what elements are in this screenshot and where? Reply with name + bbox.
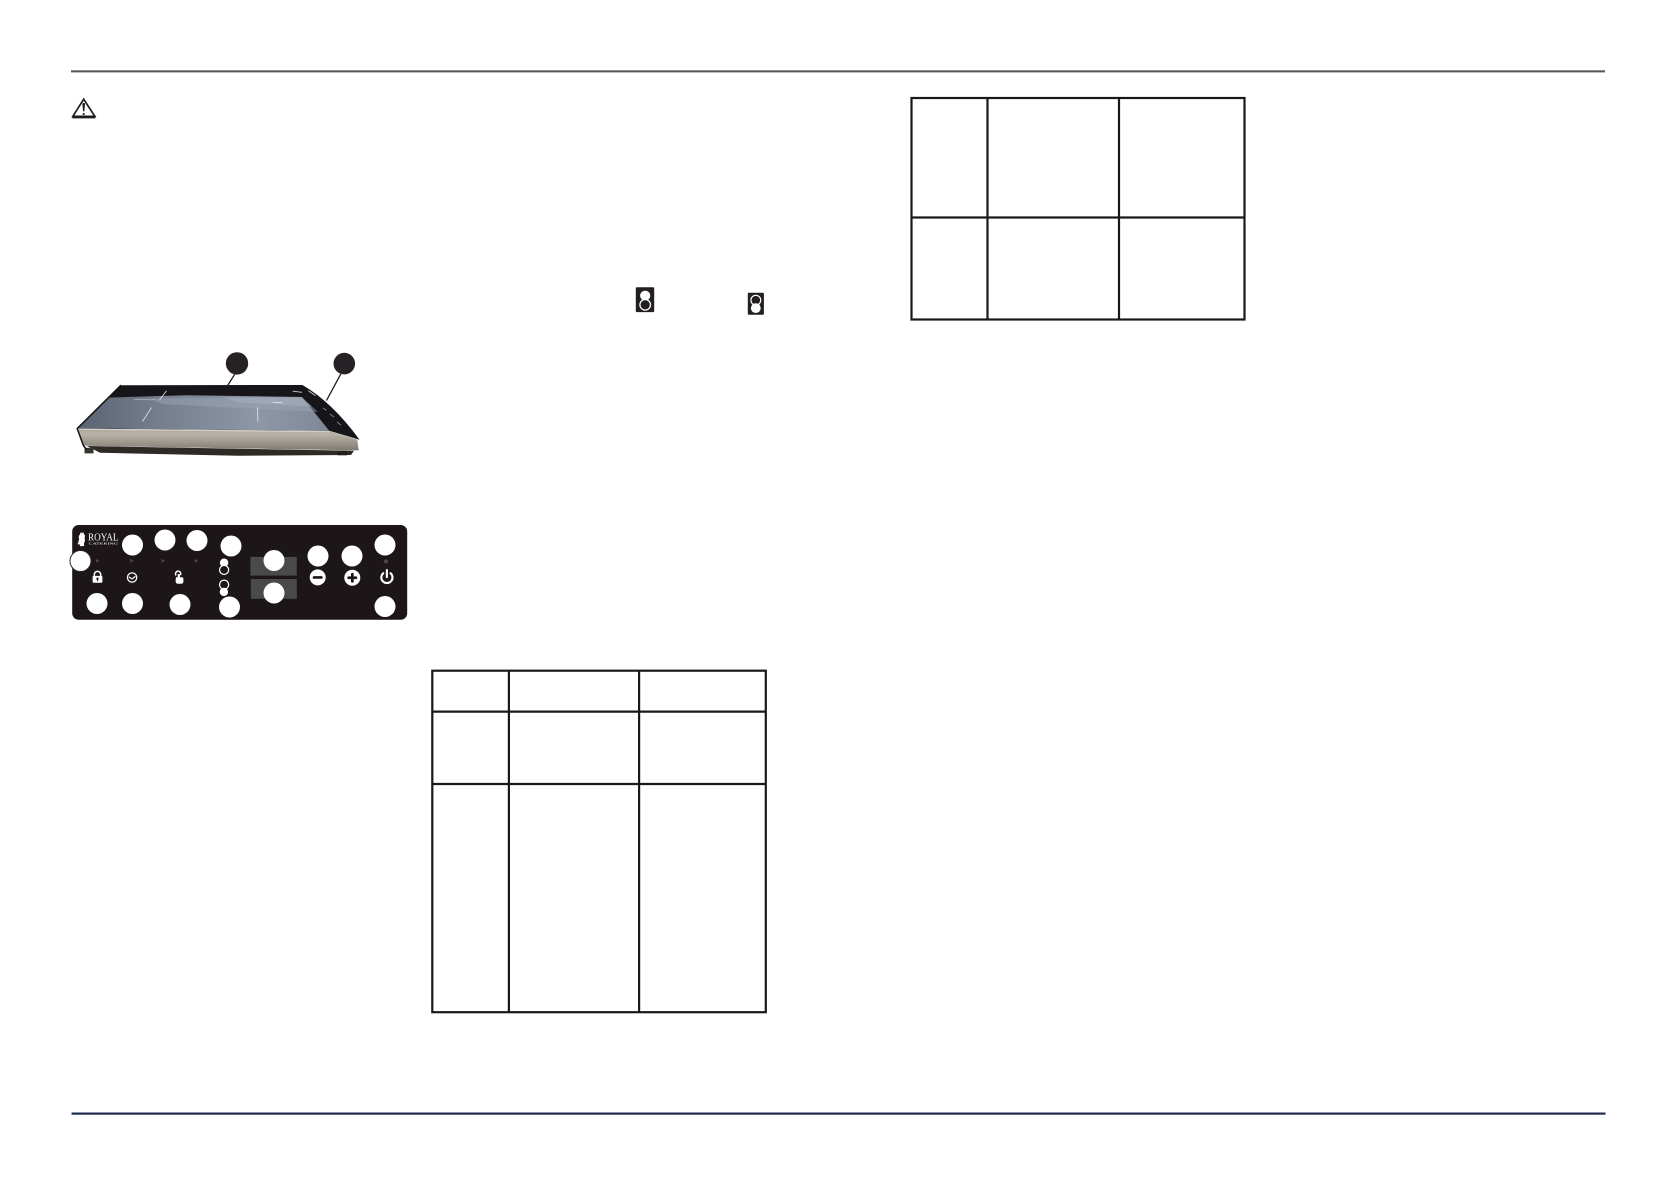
svg-text:CATERING: CATERING (89, 542, 119, 546)
